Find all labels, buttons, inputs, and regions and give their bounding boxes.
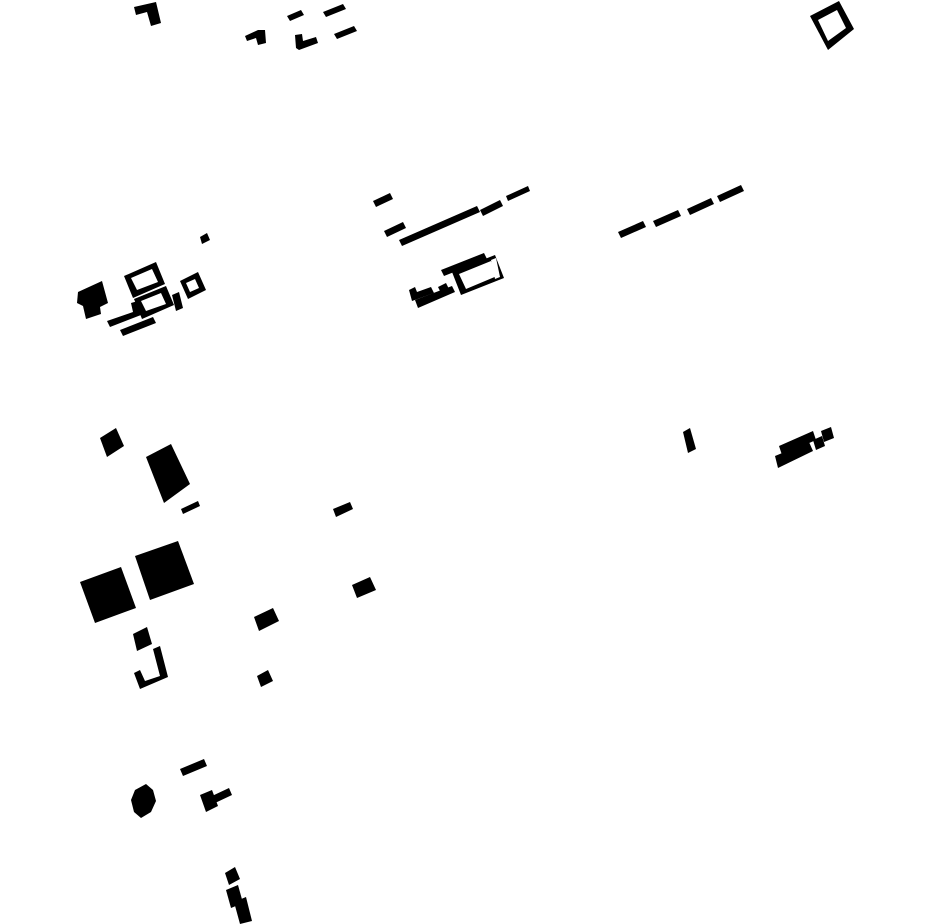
building-footprint-svg (0, 0, 930, 924)
building-dash-c2 (333, 502, 353, 517)
building-vdash-w (172, 292, 183, 311)
dash-road-w3 (480, 200, 503, 216)
building-bigsquare-2 (135, 541, 194, 600)
dash-road-e1 (618, 221, 646, 238)
building-z-lower (234, 897, 252, 924)
building-bracket-nw (134, 2, 161, 26)
building-rect-s1 (352, 577, 376, 598)
building-dot-n (200, 233, 210, 244)
building-dash-n1 (287, 10, 304, 21)
building-dash-n3 (334, 26, 357, 39)
building-blob-w (77, 281, 108, 319)
building-jbracket-sw (134, 646, 168, 689)
building-ring-w3 (180, 272, 206, 299)
dash-road-w4 (506, 186, 530, 201)
building-quad-sw (133, 627, 152, 651)
building-hook-n (245, 30, 266, 45)
building-rect-sw (146, 444, 190, 503)
building-dash-n2 (323, 4, 346, 17)
building-block-s (200, 790, 218, 812)
building-bracket-n (295, 34, 318, 50)
building-blob-s (131, 784, 156, 818)
building-dash-s (180, 759, 207, 776)
building-square-bottom (225, 867, 240, 885)
dash-road-w1 (373, 193, 393, 207)
building-tick-e (683, 428, 696, 453)
building-square-s (257, 670, 273, 687)
dash-road-e2 (653, 210, 681, 227)
building-bigsquare-1 (80, 567, 136, 623)
dash-road-e4 (717, 185, 744, 202)
building-lbar-w (107, 301, 141, 327)
dash-road-w2 (384, 222, 406, 237)
map-canvas (0, 0, 930, 924)
dash-road-long (399, 206, 480, 246)
building-footprint-layer (77, 1, 854, 924)
building-dash-sw1 (181, 501, 200, 514)
building-rect-s2 (254, 608, 279, 631)
building-square-sw1 (100, 428, 124, 457)
dash-road-e3 (687, 198, 714, 215)
